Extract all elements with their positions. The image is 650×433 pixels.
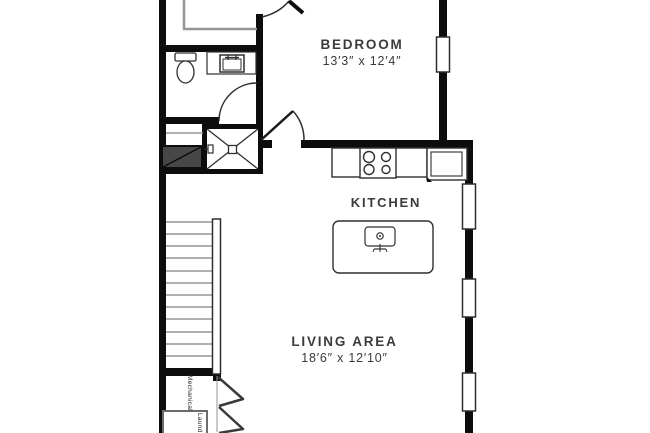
door-swing-icon bbox=[219, 83, 257, 121]
door-leaf-icon bbox=[261, 111, 293, 140]
handrail bbox=[213, 219, 221, 374]
door-swing-icon bbox=[262, 1, 289, 17]
door-swing-icon bbox=[293, 111, 304, 140]
stove-icon bbox=[360, 148, 396, 178]
bathroom bbox=[175, 52, 257, 121]
bedroom-label: BEDROOM bbox=[298, 37, 426, 52]
bedroom-dims: 13′3″ x 12′4″ bbox=[298, 54, 426, 68]
living-area-dims: 18′6″ x 12′10″ bbox=[284, 351, 405, 365]
kitchen-island bbox=[333, 221, 433, 273]
mechanical-label: Mechanical bbox=[186, 375, 193, 415]
window-icon bbox=[437, 37, 450, 72]
bifold-door-icon bbox=[219, 407, 243, 433]
floor-plan: BEDROOM 13′3″ x 12′4″ KITCHEN LIVING ARE… bbox=[0, 0, 650, 433]
laundry-label: Laundry bbox=[196, 413, 203, 433]
fridge-icon bbox=[427, 148, 467, 182]
window-icon bbox=[463, 373, 476, 411]
closet-room bbox=[184, 0, 303, 29]
kitchen-label: KITCHEN bbox=[336, 195, 436, 210]
closet-outline bbox=[184, 0, 257, 29]
living-area-label: LIVING AREA bbox=[284, 334, 405, 349]
window-icon bbox=[463, 184, 476, 229]
kitchen-fixtures bbox=[332, 148, 467, 273]
door-leaf-icon bbox=[289, 1, 303, 13]
stairs bbox=[166, 219, 221, 374]
vanity-sink-icon bbox=[207, 52, 256, 74]
bedroom-door bbox=[261, 111, 304, 140]
utility-closets bbox=[163, 376, 243, 433]
toilet-icon bbox=[175, 53, 196, 83]
chase-box bbox=[162, 133, 203, 168]
shower-icon bbox=[202, 124, 263, 174]
window-icon bbox=[463, 279, 476, 317]
bifold-door-icon bbox=[218, 377, 243, 406]
